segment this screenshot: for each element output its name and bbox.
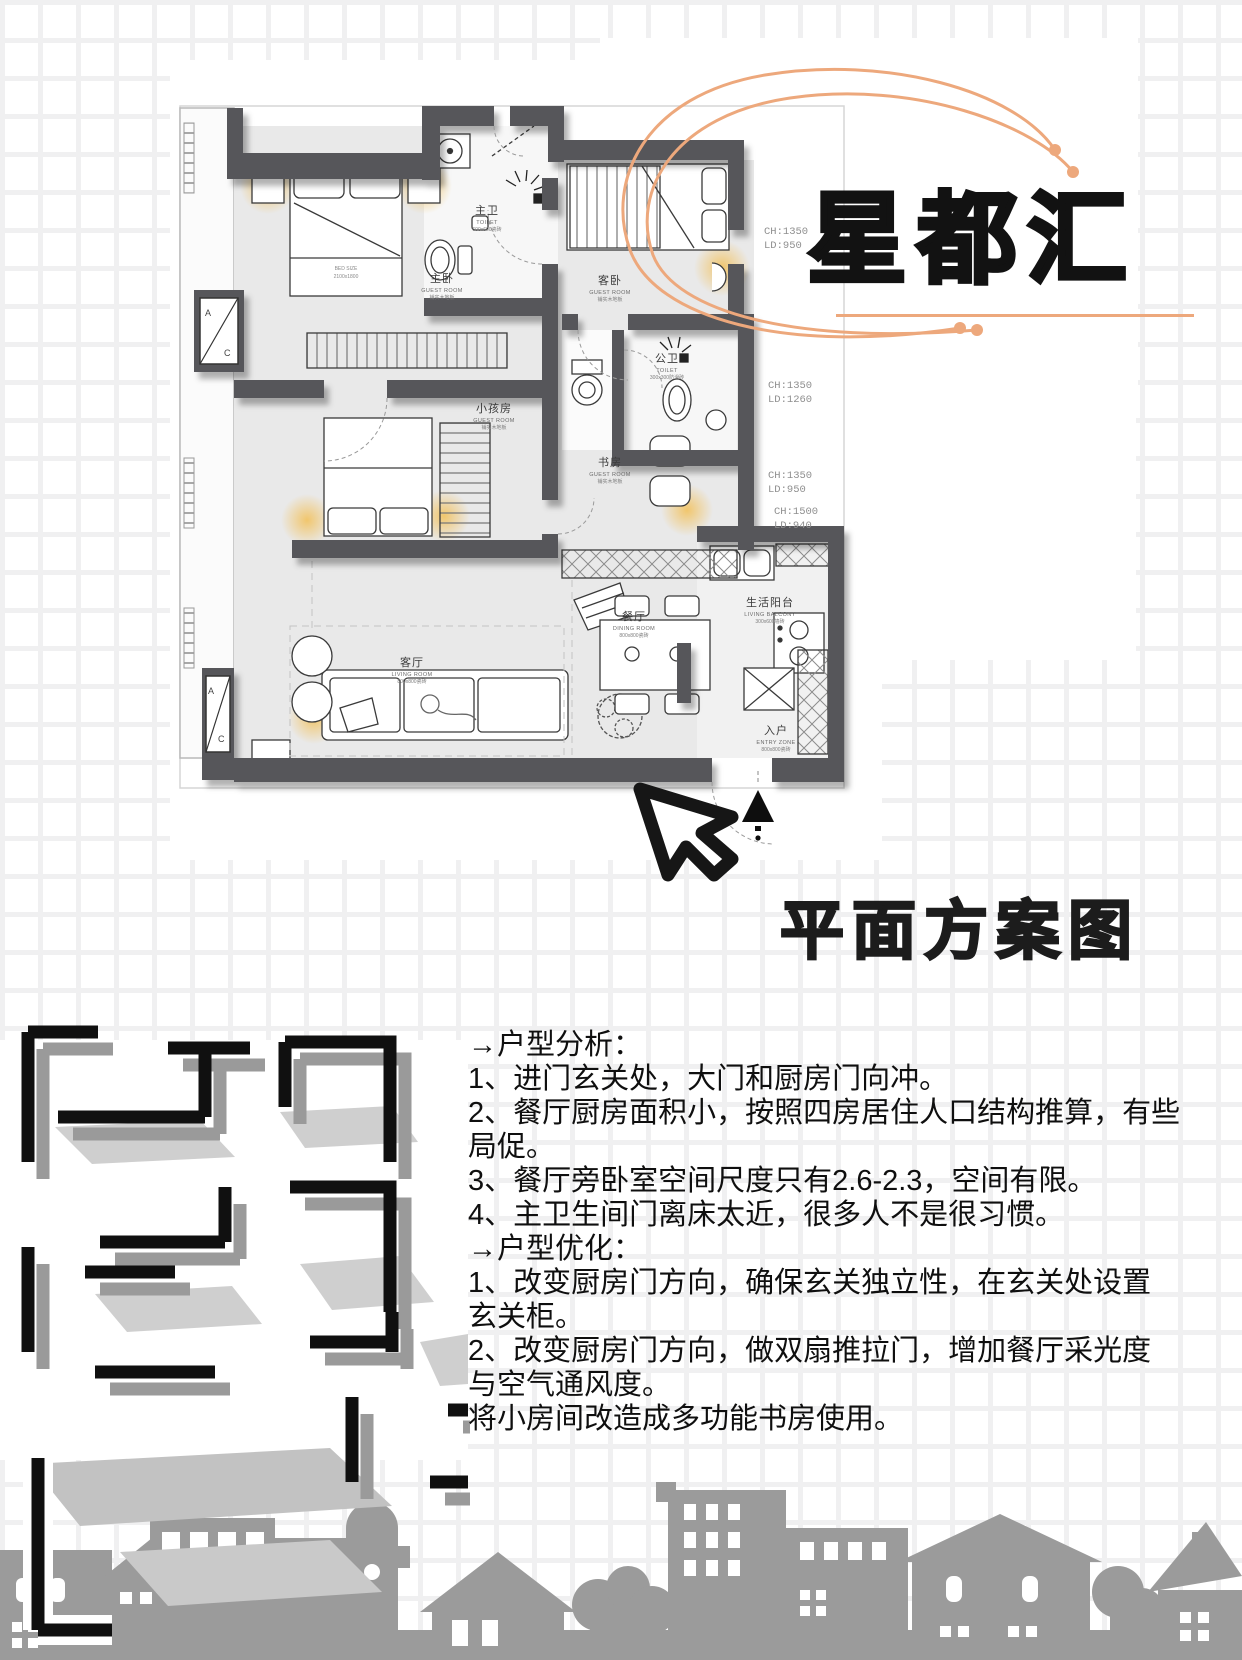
project-title: 星都汇 [772, 158, 1172, 303]
svg-text:GUEST ROOM: GUEST ROOM [421, 288, 463, 294]
round-table [292, 682, 332, 722]
svg-text:TOILET: TOILET [656, 368, 678, 374]
svg-text:LIVING BALCONY: LIVING BALCONY [744, 612, 795, 618]
wardrobe [307, 333, 507, 368]
svg-text:800x800瓷砖: 800x800瓷砖 [397, 678, 426, 685]
title-underline [836, 314, 1194, 317]
washing-machine [572, 375, 602, 405]
ac-label-a: A [208, 686, 214, 696]
ac-label-c: C [224, 348, 231, 358]
svg-text:铺实木地板: 铺实木地板 [481, 424, 506, 431]
sideboard-cabinet [562, 550, 737, 578]
svg-text:LD:940: LD:940 [774, 520, 812, 532]
svg-text:300x600墙砖: 300x600墙砖 [755, 618, 784, 625]
room-label-study: 书房 [598, 456, 622, 469]
analysis-line: 玄关柜。 [468, 1300, 1188, 1334]
analysis-line: 2、改变厨房门方向，做双扇推拉门，增加餐厅采光度 [468, 1334, 1188, 1368]
room-label-master-bath: 主卫 [475, 204, 499, 217]
svg-text:铺实木地板: 铺实木地板 [429, 294, 454, 301]
analysis-line: 将小房间改造成多功能书房使用。 [468, 1402, 1188, 1436]
analysis-line: 2、餐厅厨房面积小，按照四房居住人口结构推算，有些 [468, 1096, 1188, 1130]
svg-text:TOILET: TOILET [476, 220, 498, 226]
analysis-line: 4、主卫生间门离床太近，很多人不是很习惯。 [468, 1198, 1188, 1232]
room-label-dining-room: 餐厅 [622, 609, 646, 623]
room-label-kids-room: 小孩房 [476, 402, 512, 415]
svg-text:LD:950: LD:950 [768, 484, 806, 496]
room-label-entry: 入户 [764, 723, 788, 737]
svg-text:LIVING ROOM: LIVING ROOM [391, 672, 432, 678]
analysis-line: 局促。 [468, 1130, 1188, 1164]
kids-wardrobe [440, 423, 490, 537]
section-heading: 平面方案图 [770, 880, 1150, 972]
analysis-line: 3、餐厅旁卧室空间尺度只有2.6-2.3，空间有限。 [468, 1164, 1188, 1198]
analysis-line: 1、进门玄关处，大门和厨房门向冲。 [468, 1062, 1188, 1096]
svg-text:LD:1260: LD:1260 [768, 394, 812, 406]
svg-text:800x800瓷砖: 800x800瓷砖 [761, 746, 790, 753]
analysis-line: 与空气通风度。 [468, 1368, 1188, 1402]
svg-text:DINING ROOM: DINING ROOM [613, 626, 655, 632]
svg-text:GUEST ROOM: GUEST ROOM [589, 472, 631, 478]
svg-text:铺实木地板: 铺实木地板 [597, 478, 622, 485]
poster-page: A C A C 主卧 GUEST ROOM 铺实木 [0, 0, 1242, 1660]
svg-text:CH:1500: CH:1500 [774, 506, 818, 518]
entry-closet [798, 650, 828, 754]
room-label-master-bedroom: 主卧 [430, 272, 454, 285]
svg-text:CH:1350: CH:1350 [768, 470, 812, 482]
svg-text:GUEST ROOM: GUEST ROOM [473, 418, 515, 424]
ac-label-c: C [218, 734, 225, 744]
axonometric-floorplan-illustration [0, 1012, 470, 1660]
analysis-line: 1、改变厨房门方向，确保玄关独立性，在玄关处设置 [468, 1266, 1188, 1300]
svg-text:ENTRY ZONE: ENTRY ZONE [756, 740, 795, 746]
analysis-text-block: →户型分析： 1、进门玄关处，大门和厨房门向冲。 2、餐厅厨房面积小，按照四房居… [468, 1028, 1188, 1436]
optimization-heading: →户型优化： [468, 1232, 1188, 1266]
room-label-living-room: 客厅 [400, 655, 424, 669]
bed-size-label: BED SIZE [335, 266, 358, 272]
cursor-arrow-icon [618, 775, 788, 890]
ac-label-a: A [205, 308, 211, 318]
room-label-kitchen: 生活阳台 [746, 595, 794, 609]
squat-toilet [663, 379, 691, 421]
study-chair [650, 476, 690, 506]
svg-text:300x300防滑砖: 300x300防滑砖 [650, 374, 684, 381]
round-table [292, 636, 332, 676]
svg-text:2100x1800: 2100x1800 [334, 274, 359, 280]
svg-text:800x800瓷砖: 800x800瓷砖 [619, 632, 648, 639]
basin [706, 410, 726, 430]
svg-text:600x600瓷砖: 600x600瓷砖 [472, 226, 501, 233]
svg-text:CH:1350: CH:1350 [768, 380, 812, 392]
analysis-heading: →户型分析： [468, 1028, 1188, 1062]
